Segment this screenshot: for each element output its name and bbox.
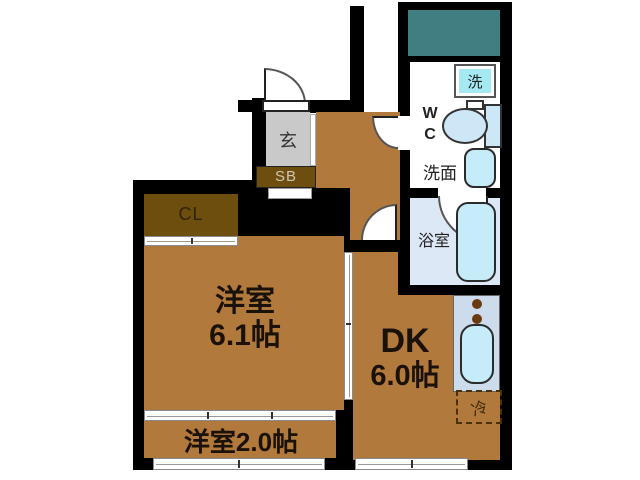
shoe-box-label: SB: [256, 165, 316, 187]
window-between-rooms: [144, 410, 336, 421]
floor-plan: 洗 冷 玄 SB CL 洋室 6.1帖 洋室2.0帖 DK 6.0帖 W C 洗…: [0, 0, 640, 480]
stove-burner: [472, 299, 482, 309]
stove-burner: [472, 314, 482, 324]
closet-label: CL: [144, 194, 238, 234]
washbasin: [464, 148, 496, 188]
dk-label: DK 6.0帖: [350, 318, 460, 398]
wall-sanitary-left-upper: [398, 60, 410, 116]
window-line: [147, 416, 333, 417]
kitchen-sink: [460, 324, 494, 384]
wall-bath-bottom: [398, 285, 512, 295]
laundry-machine: 洗: [454, 64, 496, 98]
window-tick: [411, 460, 413, 468]
laundry-label: 洗: [467, 71, 482, 92]
entrance-door-swing: [264, 68, 306, 104]
toilet-bowl: [442, 108, 488, 144]
window-bottom-left: [153, 458, 325, 470]
wall-entry-top-left: [238, 100, 264, 112]
toilet-lid: [466, 100, 484, 110]
entrance-step: [268, 188, 312, 199]
window-tick: [238, 460, 240, 468]
wall-left: [133, 180, 144, 470]
window-bottom-dk: [355, 458, 468, 470]
wall-porch: [350, 6, 364, 108]
entrance-edge: [310, 114, 316, 166]
wc-door-opening: [398, 116, 410, 150]
window-tick: [207, 412, 209, 419]
toilet-label: W C: [418, 103, 442, 147]
window-tick: [271, 412, 273, 419]
closet-sliding-door: [144, 236, 238, 246]
washroom-label: 洗面: [416, 160, 464, 182]
refrigerator-label: 冷: [467, 393, 490, 421]
bathroom-label: 浴室: [412, 229, 456, 249]
small-room-label: 洋室2.0帖: [146, 424, 336, 456]
entrance-door-slab: [262, 100, 310, 112]
terrace: [408, 10, 502, 56]
wall-bath-top-right: [486, 188, 512, 198]
entrance-label: 玄: [266, 112, 310, 168]
main-room-label: 洋室 6.1帖: [160, 280, 330, 358]
window-tick: [191, 238, 193, 244]
bathtub: [456, 202, 496, 282]
refrigerator-space: 冷: [456, 390, 502, 424]
